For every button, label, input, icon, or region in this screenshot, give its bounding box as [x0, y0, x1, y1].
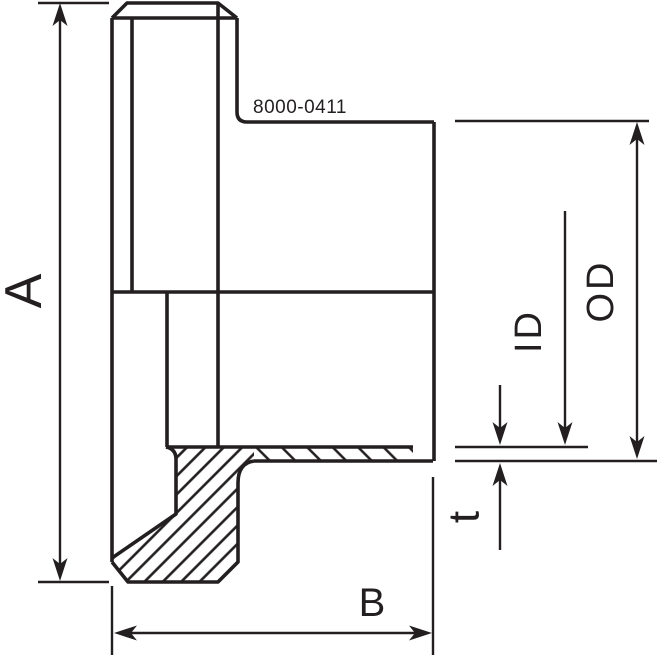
part-number-label: 8000-0411 [253, 97, 347, 118]
section-hatch-tube [254, 447, 413, 461]
dimension-od: OD [455, 121, 649, 459]
dimension-id: ID [508, 211, 573, 445]
dimension-label-b: B [359, 581, 386, 625]
weld-ferrule-section-drawing: A B ID OD t 8000-0411 [0, 0, 659, 658]
tube-wall-section-fill [254, 447, 413, 461]
dimension-label-t: t [440, 511, 489, 523]
dimension-a: A [0, 3, 109, 582]
technical-drawing-canvas: A B ID OD t 8000-0411 [0, 0, 659, 658]
dimension-label-id: ID [508, 309, 550, 353]
section-hatch-ferrule [112, 447, 254, 582]
ferrule-section-fill [112, 447, 254, 582]
dimension-label-od: OD [580, 260, 622, 323]
dimension-t: t [440, 385, 658, 550]
dimension-label-a: A [0, 273, 53, 308]
part-outline [112, 3, 434, 562]
